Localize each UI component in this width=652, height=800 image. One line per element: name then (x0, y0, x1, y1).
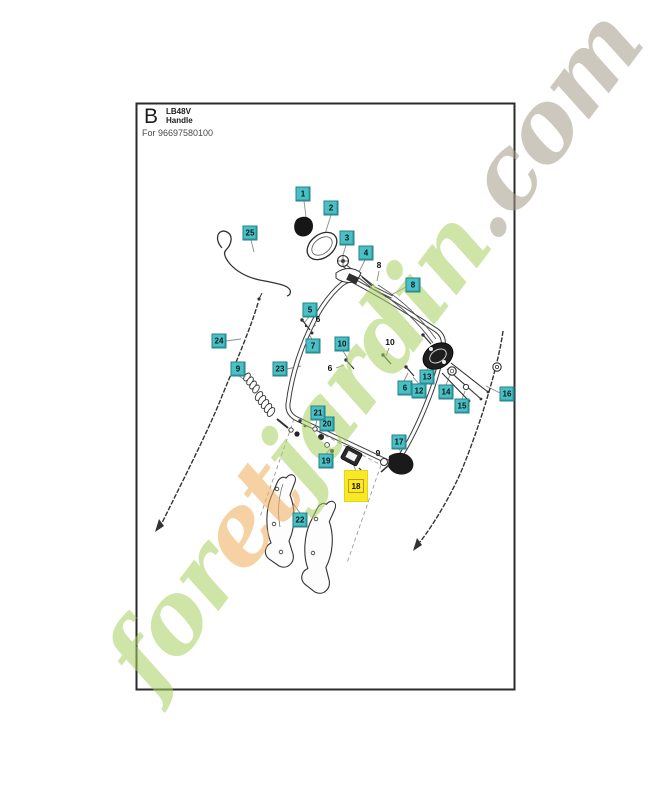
part-label-1: 1 (296, 187, 311, 202)
part-label-7: 7 (306, 339, 321, 354)
part-label-10: 10 (385, 337, 394, 347)
page-frame (137, 104, 515, 690)
part-label-9: 9 (376, 448, 381, 458)
section-name: Handle (166, 116, 193, 125)
part-label-24: 24 (212, 334, 227, 349)
part-label-22: 22 (293, 513, 308, 528)
part-label-9: 9 (231, 362, 246, 377)
part-label-6: 6 (328, 363, 333, 373)
part-label-21: 21 (311, 406, 326, 421)
part-label-19: 19 (319, 454, 334, 469)
part-label-25: 25 (243, 226, 258, 241)
exploded-view-drawing (0, 0, 652, 800)
part-label-3: 3 (340, 231, 355, 246)
part-label-14: 14 (439, 385, 454, 400)
part-label-18-highlighted: 18 (344, 470, 368, 502)
cable-curly (218, 231, 291, 296)
part-label-number: 18 (348, 479, 364, 493)
part-label-23: 23 (273, 362, 288, 377)
part-disc (338, 256, 349, 267)
model-number: For 96697580100 (142, 128, 213, 138)
part-label-16: 16 (500, 387, 515, 402)
parts-diagram-page: foretjardin.com B LB48V Handle For 96697… (0, 0, 652, 800)
part-label-15: 15 (455, 399, 470, 414)
part-grip-cap (294, 217, 313, 237)
section-letter: B (144, 106, 158, 127)
part-label-17: 17 (392, 435, 407, 450)
part-label-10: 10 (335, 337, 350, 352)
part-label-4: 4 (359, 246, 374, 261)
part-label-6: 6 (316, 314, 321, 324)
cable-left (155, 293, 262, 532)
part-brackets (265, 475, 335, 594)
part-label-8: 8 (377, 260, 382, 270)
part-label-6: 6 (398, 381, 413, 396)
part-lower-lever (381, 453, 414, 475)
part-label-13: 13 (420, 370, 435, 385)
part-label-2: 2 (324, 201, 339, 216)
part-label-8: 8 (406, 278, 421, 293)
model-name: LB48V (166, 107, 191, 116)
part-label-12: 12 (412, 384, 427, 399)
